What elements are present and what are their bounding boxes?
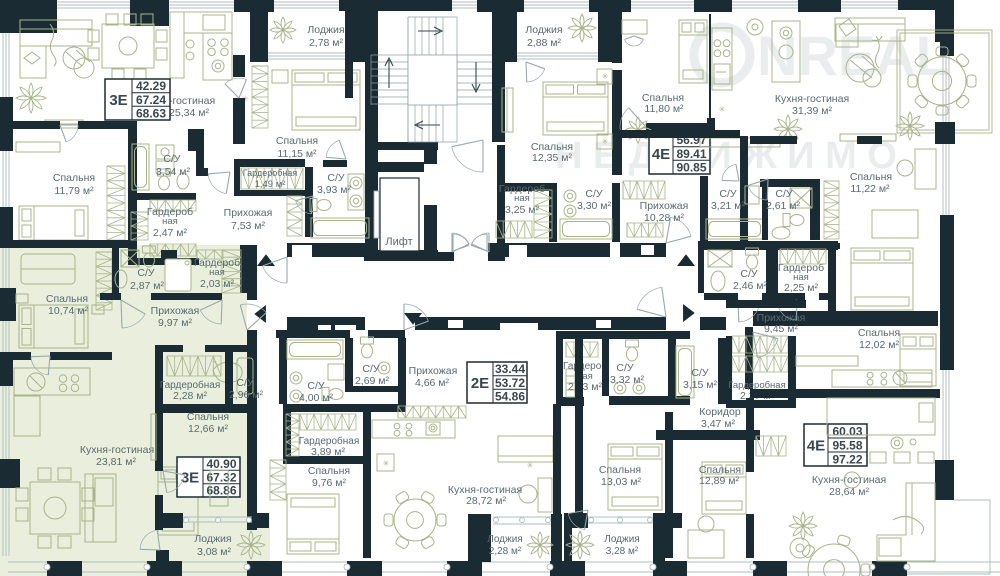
svg-text:Лоджия: Лоджия (194, 533, 231, 545)
svg-text:С/У: С/У (362, 363, 380, 375)
svg-text:97.22: 97.22 (832, 452, 862, 466)
svg-text:Спальня: Спальня (53, 172, 95, 184)
svg-text:10,28 м²: 10,28 м² (644, 212, 684, 224)
svg-text:9,45 м²: 9,45 м² (764, 323, 799, 335)
svg-text:3,21 м²: 3,21 м² (711, 200, 746, 212)
svg-text:3,54 м²: 3,54 м² (156, 166, 191, 178)
svg-text:✳: ✳ (602, 72, 609, 81)
svg-text:13,03 м²: 13,03 м² (601, 476, 641, 488)
svg-text:С/У: С/У (163, 153, 181, 165)
svg-text:12,35 м²: 12,35 м² (532, 152, 572, 164)
svg-text:67.32: 67.32 (206, 470, 236, 484)
svg-text:Лифт: Лифт (385, 236, 412, 248)
svg-text:31,39 м²: 31,39 м² (792, 105, 832, 117)
svg-text:3,08 м²: 3,08 м² (197, 546, 232, 558)
svg-text:✳: ✳ (383, 459, 390, 468)
svg-text:42.29: 42.29 (136, 79, 166, 93)
svg-text:89.41: 89.41 (676, 147, 706, 161)
svg-text:60.03: 60.03 (832, 424, 862, 438)
svg-text:1,49 м²: 1,49 м² (255, 179, 286, 190)
svg-text:С/У: С/У (327, 172, 345, 184)
svg-text:2,46 м²: 2,46 м² (733, 280, 768, 292)
svg-text:2,96 м²: 2,96 м² (229, 389, 264, 401)
svg-text:Прихожая: Прихожая (409, 365, 458, 377)
svg-text:С/У: С/У (236, 377, 254, 389)
svg-text:2,69 м²: 2,69 м² (355, 375, 390, 387)
svg-text:9,97 м²: 9,97 м² (158, 317, 193, 329)
svg-text:90.85: 90.85 (676, 160, 706, 174)
svg-text:Спальня: Спальня (850, 171, 892, 183)
svg-text:3,89 м²: 3,89 м² (311, 446, 346, 458)
svg-text:3,25 м²: 3,25 м² (505, 204, 540, 216)
svg-text:95.58: 95.58 (832, 438, 862, 452)
svg-text:12,89 м²: 12,89 м² (699, 475, 739, 487)
svg-text:Спальня: Спальня (308, 465, 350, 477)
svg-text:С/У: С/У (137, 267, 155, 279)
svg-text:7,53 м²: 7,53 м² (231, 220, 266, 232)
svg-text:Спальня: Спальня (46, 293, 88, 305)
svg-text:10,74 м²: 10,74 м² (48, 305, 88, 317)
svg-text:Гардеробная: Гардеробная (243, 168, 298, 178)
svg-text:С/У: С/У (719, 188, 737, 200)
svg-text:2,53 м²: 2,53 м² (568, 381, 603, 393)
svg-text:4Е: 4Е (652, 146, 670, 163)
svg-text:2,25 м²: 2,25 м² (784, 282, 819, 294)
svg-text:Кухня-гостиная: Кухня-гостиная (775, 93, 849, 105)
svg-text:3,47 м²: 3,47 м² (701, 418, 736, 430)
svg-text:С/У: С/У (775, 188, 793, 200)
svg-text:2,87 м²: 2,87 м² (130, 280, 165, 292)
svg-text:2,28 м²: 2,28 м² (489, 546, 522, 557)
svg-text:33.44: 33.44 (495, 362, 525, 376)
svg-text:Коридор: Коридор (699, 406, 741, 418)
svg-text:ная: ная (514, 193, 530, 204)
svg-text:12,02 м²: 12,02 м² (859, 339, 899, 351)
svg-text:Лоджия: Лоджия (604, 534, 639, 545)
svg-text:2Е: 2Е (471, 375, 489, 392)
svg-text:3,15 м²: 3,15 м² (683, 379, 718, 391)
svg-text:Спальня: Спальня (187, 411, 229, 423)
svg-text:2,88 м²: 2,88 м² (527, 37, 562, 49)
svg-text:С/У: С/У (307, 380, 325, 392)
svg-text:4Е: 4Е (807, 437, 825, 454)
svg-text:3,28 м²: 3,28 м² (606, 546, 639, 557)
svg-text:68.63: 68.63 (136, 106, 166, 120)
svg-text:Прихожая: Прихожая (151, 305, 200, 317)
svg-text:23,81 м²: 23,81 м² (96, 456, 136, 468)
svg-text:11,80 м²: 11,80 м² (644, 103, 684, 115)
svg-text:3Е: 3Е (109, 92, 127, 109)
svg-text:Спальня: Спальня (599, 464, 641, 476)
svg-text:40.90: 40.90 (206, 457, 236, 471)
svg-text:28,72 м²: 28,72 м² (466, 495, 506, 507)
svg-text:2,47 м²: 2,47 м² (153, 227, 188, 239)
svg-text:3,30 м²: 3,30 м² (577, 200, 612, 212)
svg-text:68.86: 68.86 (206, 484, 236, 498)
svg-text:✳: ✳ (719, 105, 726, 114)
svg-text:54.86: 54.86 (495, 389, 525, 403)
svg-text:3,93 м²: 3,93 м² (317, 184, 352, 196)
svg-text:Кухня-гостиная: Кухня-гостиная (812, 474, 886, 486)
svg-text:Кухня-гостиная: Кухня-гостиная (80, 444, 154, 456)
svg-text:Лоджия: Лоджия (307, 24, 344, 36)
svg-text:11,22 м²: 11,22 м² (850, 183, 890, 195)
svg-text:4,66 м²: 4,66 м² (415, 377, 450, 389)
svg-text:9,76 м²: 9,76 м² (312, 477, 347, 489)
svg-text:✳: ✳ (602, 137, 609, 146)
svg-text:Прихожая: Прихожая (640, 200, 689, 212)
svg-text:Спальня: Спальня (276, 135, 318, 147)
svg-text:11,79 м²: 11,79 м² (54, 185, 94, 197)
svg-text:Лоджия: Лоджия (487, 534, 522, 545)
svg-text:2,78 м²: 2,78 м² (309, 37, 344, 49)
svg-text:25,34 м²: 25,34 м² (169, 107, 209, 119)
svg-text:3,32 м²: 3,32 м² (610, 374, 645, 386)
svg-text:2,28 м²: 2,28 м² (173, 390, 208, 402)
svg-text:53.72: 53.72 (495, 376, 525, 390)
svg-text:Лоджия: Лоджия (525, 24, 562, 36)
svg-text:67.24: 67.24 (136, 93, 166, 107)
svg-text:2,03 м²: 2,03 м² (200, 278, 235, 290)
svg-text:Спальня: Спальня (858, 327, 900, 339)
svg-text:ная: ная (162, 216, 178, 227)
svg-text:12,66 м²: 12,66 м² (188, 423, 228, 435)
svg-text:Прихожая: Прихожая (224, 207, 273, 219)
svg-text:2,61 м²: 2,61 м² (766, 200, 801, 212)
svg-text:ная: ная (209, 267, 225, 278)
svg-text:С/У: С/У (585, 188, 603, 200)
svg-text:С/У: С/У (616, 362, 634, 374)
svg-text:С/У: С/У (740, 268, 758, 280)
svg-text:11,15 м²: 11,15 м² (277, 148, 317, 160)
svg-text:С/У: С/У (691, 367, 709, 379)
svg-text:4,00 м²: 4,00 м² (299, 392, 334, 404)
